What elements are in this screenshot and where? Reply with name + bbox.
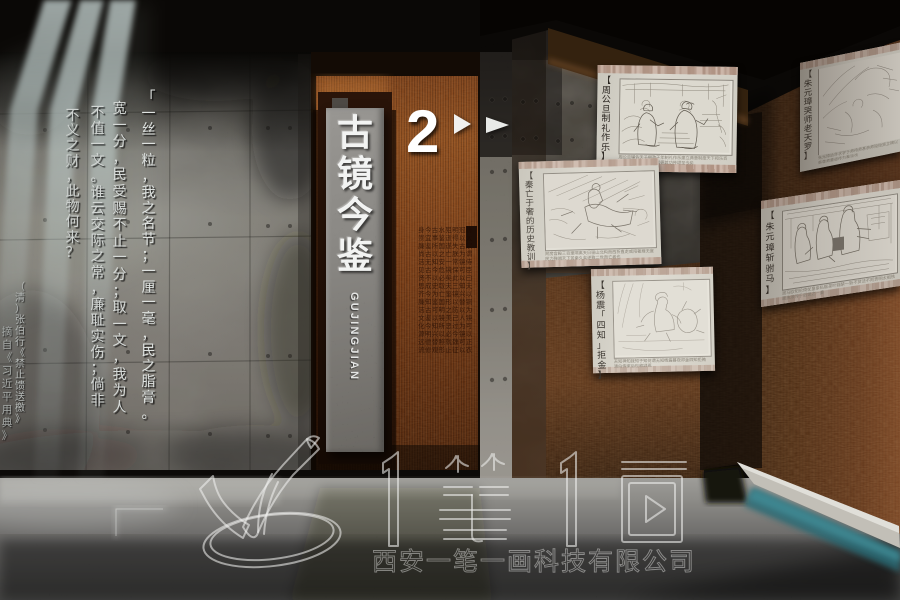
svg-text:西安一笔一画科技有限公司: 西安一笔一画科技有限公司 — [372, 548, 696, 576]
